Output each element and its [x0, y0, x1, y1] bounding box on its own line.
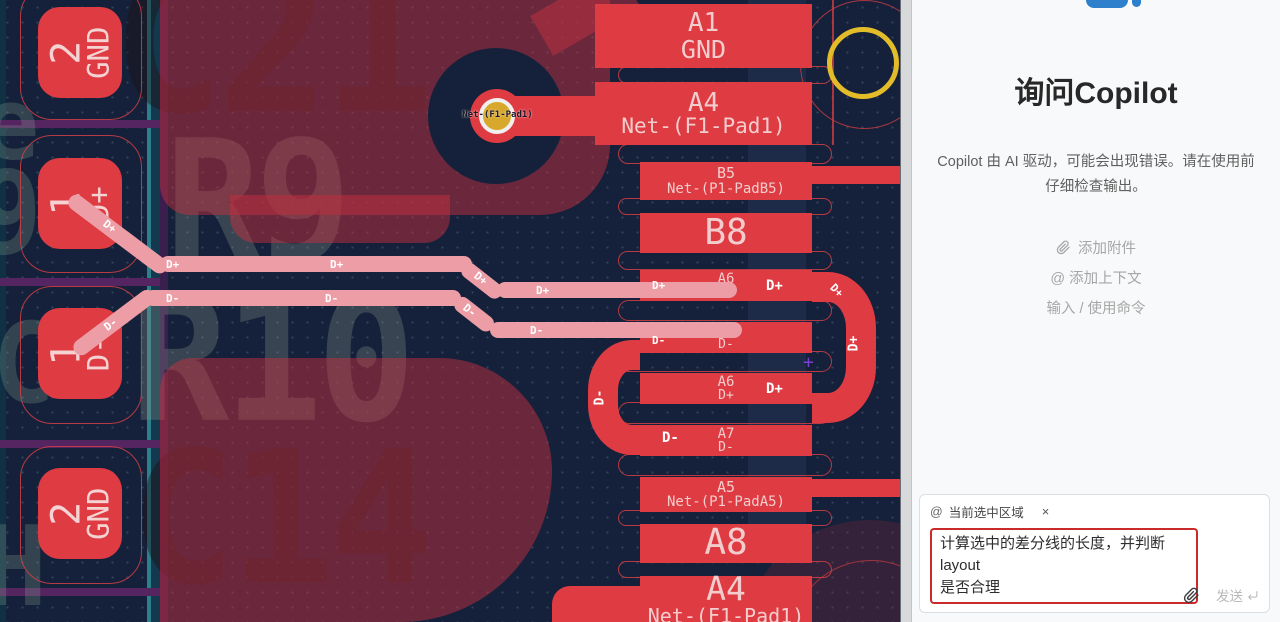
pad-A6-2[interactable]: A6 D+ — [640, 373, 812, 404]
pad-net: D- — [718, 441, 734, 454]
trace-label-dplus: D+ — [766, 381, 783, 397]
drill-hole-ring[interactable] — [827, 27, 899, 99]
context-chip-label: 当前选中区域 — [949, 502, 1024, 521]
pad-net: Net-(P1-PadA5) — [667, 495, 785, 509]
stadium-outline — [618, 251, 832, 270]
pad-name: A4 — [706, 572, 746, 606]
pad-net: GND — [681, 37, 726, 63]
pad-net: Net-(P1-PadB5) — [667, 182, 785, 196]
at-icon: @ — [930, 505, 943, 519]
via-net-label: Net-(F1-Pad1) — [445, 110, 550, 120]
chip-close-icon[interactable]: × — [1042, 504, 1050, 519]
trace-dplus-loop[interactable] — [812, 272, 876, 423]
copilot-panel: 询问Copilot Copilot 由 AI 驱动，可能会出现错误。请在使用前 … — [912, 0, 1280, 622]
copilot-hints: 添加附件 @ 添加上下文 输入 / 使用命令 — [912, 237, 1280, 318]
pad-B8[interactable]: B8 — [640, 213, 812, 253]
pad-B5[interactable]: B5 Net-(P1-PadB5) — [640, 162, 812, 200]
attach-file-icon[interactable] — [1183, 587, 1200, 604]
input-footer: 发送 — [1183, 585, 1259, 605]
copilot-logo-icon — [1086, 0, 1128, 8]
pad-name: A1 — [688, 10, 719, 37]
trace-label-dplus: D+ — [166, 258, 179, 271]
pad-name: B8 — [704, 215, 747, 252]
disclaimer-line2: 仔细检查输出。 — [1045, 179, 1147, 195]
trace-label-dplus: D+ — [330, 258, 343, 271]
pad-A1[interactable]: A1 GND — [595, 4, 812, 68]
stadium-outline — [618, 144, 832, 164]
prompt-textarea[interactable]: 计算选中的差分线的长度，并判断layout 是否合理 — [930, 528, 1198, 604]
copper-pour-top-bump — [230, 195, 450, 243]
pad-net: GND — [85, 487, 112, 539]
trace-A4-extension — [552, 586, 644, 622]
pad-number: 2 — [48, 501, 85, 525]
pad-name: A6 — [718, 375, 735, 389]
trace-label-dminus: D- — [662, 430, 679, 446]
pad-A4[interactable]: A4 Net-(F1-Pad1) — [595, 82, 812, 145]
add-context-hint[interactable]: @ 添加上下文 — [1050, 267, 1141, 288]
pad-name: A8 — [704, 525, 747, 562]
trace-label-dminus: D- — [325, 292, 338, 305]
pad-name: A7 — [718, 427, 735, 441]
trace-B5-stub[interactable] — [812, 166, 900, 184]
trace-label-dminus: D- — [592, 390, 607, 406]
origin-cross-marker: + — [803, 352, 814, 373]
pad-number: 2 — [48, 40, 85, 64]
chat-input-card[interactable]: @ 当前选中区域 × 计算选中的差分线的长度，并判断layout 是否合理 发送 — [919, 494, 1270, 613]
copilot-logo-dot-icon — [1132, 0, 1141, 7]
trace-label-dplus: D+ — [536, 284, 549, 297]
disclaimer-line1: Copilot 由 AI 驱动，可能会出现错误。请在使用前 — [937, 154, 1254, 170]
pad-net: Net-(F1-Pad1) — [621, 116, 785, 137]
scrollbar-track[interactable] — [901, 0, 912, 622]
context-chip[interactable]: @ 当前选中区域 × — [930, 502, 1259, 521]
trace-label-dminus: D- — [530, 324, 543, 337]
pad-2-gnd-top[interactable]: 2GND — [38, 7, 122, 98]
add-attachment-hint[interactable]: 添加附件 — [1056, 237, 1136, 258]
send-button[interactable]: 发送 — [1216, 585, 1259, 605]
use-command-label: 输入 / 使用命令 — [1046, 297, 1145, 318]
trace-label-dminus: D- — [652, 334, 665, 347]
stadium-outline — [618, 300, 832, 321]
send-label: 发送 — [1216, 585, 1243, 605]
add-context-label: @ 添加上下文 — [1050, 267, 1141, 288]
pad-A5[interactable]: A5 Net-(P1-PadA5) — [640, 477, 812, 512]
stadium-outline — [618, 402, 832, 424]
copilot-title: 询问Copilot — [912, 68, 1280, 112]
trace-dminus-selected-h2[interactable] — [490, 322, 742, 338]
add-attachment-label: 添加附件 — [1078, 237, 1136, 258]
pcb-canvas[interactable]: C21 R9 R10 C14 e 9 C H 2GND 1D+ 1D- 2GND — [0, 0, 900, 622]
pad-name: A5 — [717, 480, 735, 495]
pad-net: GND — [85, 26, 112, 78]
pad-name: B5 — [717, 166, 735, 181]
trace-dminus-selected-h1[interactable] — [145, 290, 461, 306]
paperclip-icon — [1056, 240, 1071, 255]
stadium-outline — [618, 351, 832, 372]
trace-label-dminus: D- — [166, 292, 179, 305]
pad-net: D- — [718, 338, 734, 351]
pad-2-gnd-bottom[interactable]: 2GND — [38, 468, 122, 559]
pad-A4-bottom[interactable]: A4 Net-(F1-Pad1) — [640, 576, 812, 622]
pad-A8[interactable]: A8 — [640, 524, 812, 563]
prompt-line2: 是否合理 — [940, 577, 1188, 599]
copilot-disclaimer: Copilot 由 AI 驱动，可能会出现错误。请在使用前 仔细检查输出。 — [912, 150, 1280, 200]
enter-key-icon — [1246, 589, 1259, 602]
trace-A5-stub[interactable] — [812, 479, 900, 497]
trace-label-dplus: D+ — [846, 336, 861, 352]
pad-net-clipped: Net-(F1-Pad1) — [648, 606, 805, 622]
stadium-outline — [618, 454, 832, 476]
use-command-hint: 输入 / 使用命令 — [1046, 297, 1145, 318]
pad-net: D+ — [718, 389, 734, 402]
trace-dplus-selected-h1[interactable] — [160, 256, 472, 272]
trace-label-dplus: D+ — [652, 279, 665, 292]
prompt-line1: 计算选中的差分线的长度，并判断layout — [940, 533, 1188, 577]
trace-label-dplus: D+ — [766, 278, 783, 294]
trace-dplus-selected-h2[interactable] — [497, 282, 737, 298]
copper-pour-bottom[interactable] — [160, 358, 552, 622]
pad-name: A4 — [688, 90, 719, 117]
app-window: C21 R9 R10 C14 e 9 C H 2GND 1D+ 1D- 2GND — [0, 0, 1280, 622]
